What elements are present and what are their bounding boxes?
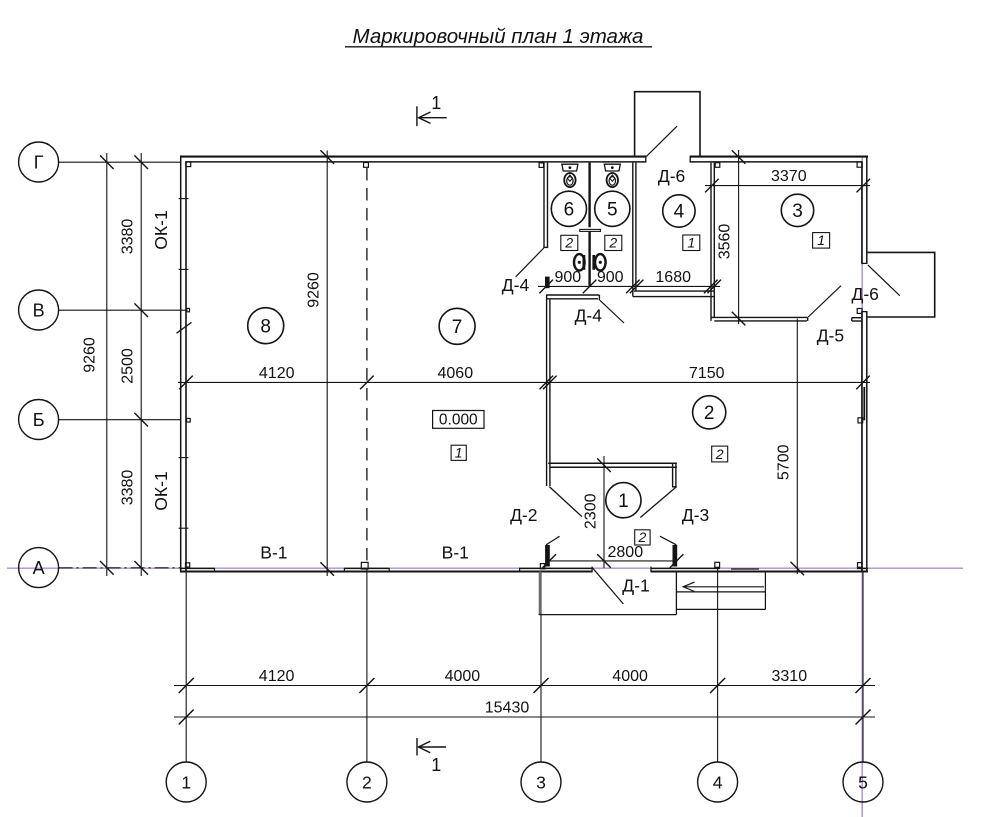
svg-text:2: 2 xyxy=(608,235,617,251)
svg-text:1: 1 xyxy=(817,232,825,248)
svg-text:5: 5 xyxy=(607,200,618,221)
svg-text:ОК-1: ОК-1 xyxy=(151,471,171,510)
svg-text:1: 1 xyxy=(618,491,629,512)
svg-text:4120: 4120 xyxy=(259,365,295,382)
svg-text:2500: 2500 xyxy=(120,348,137,384)
svg-text:1: 1 xyxy=(687,235,695,251)
svg-text:1: 1 xyxy=(455,445,463,461)
svg-text:Д-4: Д-4 xyxy=(575,306,603,326)
svg-text:6: 6 xyxy=(564,200,575,221)
svg-text:В-1: В-1 xyxy=(442,543,469,563)
svg-text:900: 900 xyxy=(554,269,581,286)
svg-text:4: 4 xyxy=(713,772,723,792)
svg-text:Д-3: Д-3 xyxy=(682,505,709,525)
svg-text:2300: 2300 xyxy=(583,493,600,529)
svg-text:2: 2 xyxy=(564,235,573,251)
svg-text:5: 5 xyxy=(858,772,868,792)
svg-text:3380: 3380 xyxy=(120,219,137,255)
svg-text:1: 1 xyxy=(431,755,441,775)
svg-text:В-1: В-1 xyxy=(260,543,287,563)
svg-text:Д-6: Д-6 xyxy=(851,284,878,304)
svg-text:2800: 2800 xyxy=(608,544,644,561)
svg-text:3560: 3560 xyxy=(717,224,734,260)
svg-text:0.000: 0.000 xyxy=(439,412,478,429)
svg-text:9260: 9260 xyxy=(306,272,323,308)
svg-text:Б: Б xyxy=(33,410,45,430)
svg-text:8: 8 xyxy=(260,316,271,337)
svg-text:4000: 4000 xyxy=(445,668,481,685)
svg-text:15430: 15430 xyxy=(485,699,530,716)
svg-text:3: 3 xyxy=(536,772,546,792)
svg-text:Д-1: Д-1 xyxy=(622,575,649,595)
svg-text:9260: 9260 xyxy=(82,337,99,373)
svg-text:1680: 1680 xyxy=(655,269,691,286)
svg-text:Д-6: Д-6 xyxy=(658,166,685,186)
svg-text:1: 1 xyxy=(431,93,441,113)
svg-text:3310: 3310 xyxy=(772,668,808,685)
svg-text:В: В xyxy=(33,300,45,320)
svg-text:2: 2 xyxy=(715,446,724,462)
svg-text:3370: 3370 xyxy=(771,168,807,185)
svg-text:Маркировочный план 1 этажа: Маркировочный план 1 этажа xyxy=(353,25,644,48)
svg-text:Д-2: Д-2 xyxy=(510,505,537,525)
svg-text:2: 2 xyxy=(704,403,715,424)
svg-text:3: 3 xyxy=(792,201,803,222)
svg-text:4000: 4000 xyxy=(612,668,648,685)
svg-text:А: А xyxy=(33,558,45,578)
svg-text:Д-5: Д-5 xyxy=(817,325,844,345)
svg-text:Г: Г xyxy=(34,152,44,172)
svg-text:ОК-1: ОК-1 xyxy=(151,210,171,249)
svg-text:2: 2 xyxy=(362,772,372,792)
svg-text:2: 2 xyxy=(638,529,647,545)
svg-text:1: 1 xyxy=(181,772,191,792)
svg-text:7: 7 xyxy=(452,317,463,338)
svg-text:3380: 3380 xyxy=(120,470,137,506)
svg-text:4: 4 xyxy=(674,202,685,223)
svg-text:7150: 7150 xyxy=(689,365,725,382)
svg-text:Д-4: Д-4 xyxy=(502,275,530,295)
svg-text:5700: 5700 xyxy=(776,444,793,480)
svg-text:4120: 4120 xyxy=(259,668,295,685)
svg-text:4060: 4060 xyxy=(438,365,474,382)
